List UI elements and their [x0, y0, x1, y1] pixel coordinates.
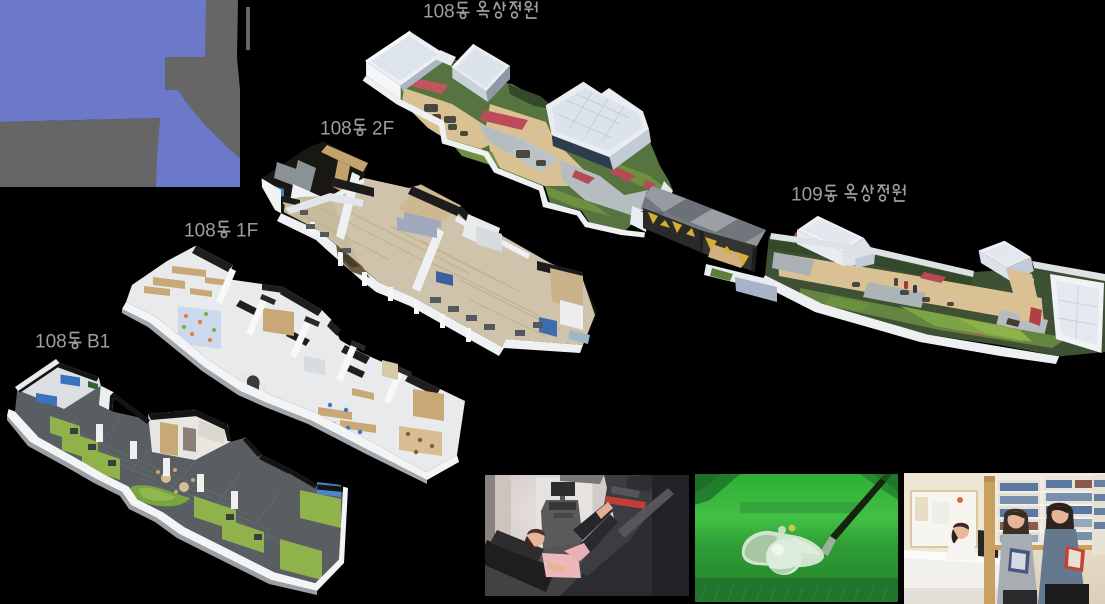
- svg-text:109: 109: [791, 185, 823, 206]
- svg-text:108: 108: [184, 221, 216, 242]
- svg-text:B1: B1: [87, 332, 110, 353]
- svg-text:108: 108: [423, 2, 455, 23]
- svg-text:108: 108: [35, 332, 67, 353]
- svg-text:1F: 1F: [236, 221, 258, 242]
- svg-text:108: 108: [320, 119, 352, 140]
- svg-text:2F: 2F: [372, 119, 394, 140]
